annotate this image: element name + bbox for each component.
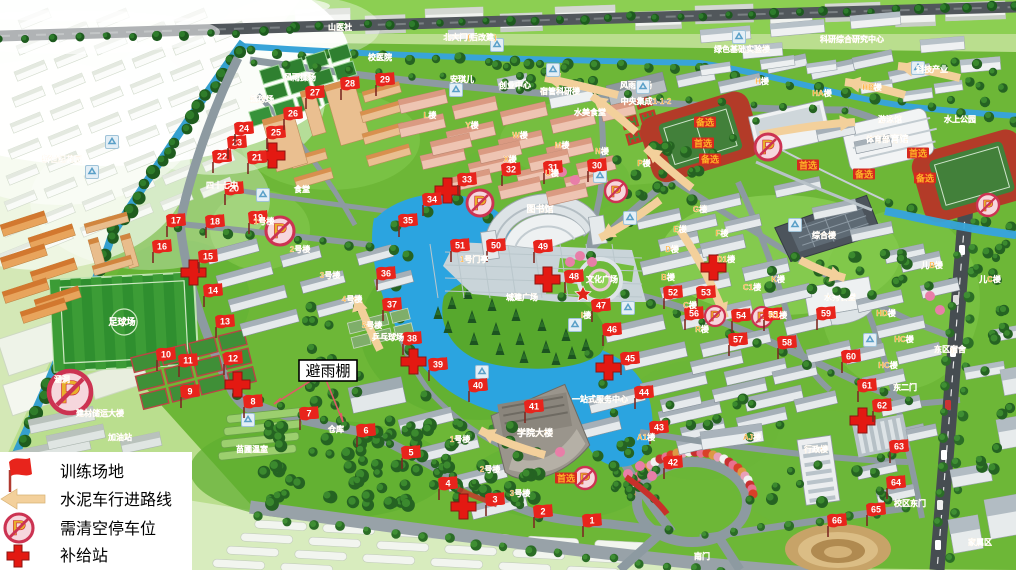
svg-text:4: 4 <box>445 479 450 489</box>
svg-text:训练场地: 训练场地 <box>60 463 124 481</box>
svg-text:需清空停车位: 需清空停车位 <box>60 520 156 538</box>
svg-text:校区东门: 校区东门 <box>894 498 926 508</box>
svg-text:16: 16 <box>157 242 167 252</box>
svg-text:I楼: I楼 <box>581 310 591 320</box>
svg-text:四十七中: 四十七中 <box>206 180 238 190</box>
svg-text:家属区: 家属区 <box>968 537 992 547</box>
svg-text:D1楼: D1楼 <box>717 254 735 264</box>
svg-text:备选: 备选 <box>700 153 719 164</box>
svg-text:25: 25 <box>271 128 281 138</box>
svg-text:科技产业: 科技产业 <box>916 64 948 74</box>
svg-text:W楼: W楼 <box>512 130 528 140</box>
svg-text:45: 45 <box>625 354 635 364</box>
svg-text:C1楼: C1楼 <box>743 282 761 292</box>
svg-text:23: 23 <box>232 138 242 148</box>
svg-text:12: 12 <box>228 354 238 364</box>
svg-text:M楼: M楼 <box>555 140 570 150</box>
svg-text:61: 61 <box>862 381 872 391</box>
svg-text:涵洞: 涵洞 <box>54 374 70 384</box>
svg-text:L楼: L楼 <box>424 110 437 120</box>
svg-text:水上公园: 水上公园 <box>943 114 976 124</box>
svg-text:行政楼: 行政楼 <box>803 444 828 454</box>
svg-text:7: 7 <box>306 409 311 419</box>
svg-text:备选: 备选 <box>695 116 714 127</box>
svg-text:65: 65 <box>871 505 881 515</box>
svg-text:仓库: 仓库 <box>327 424 344 434</box>
svg-text:24: 24 <box>239 124 249 134</box>
svg-text:40: 40 <box>473 381 483 391</box>
svg-text:10: 10 <box>161 350 171 360</box>
svg-text:儿C楼: 儿C楼 <box>978 274 1001 284</box>
svg-text:44: 44 <box>639 388 649 398</box>
svg-text:39: 39 <box>433 360 443 370</box>
svg-text:6: 6 <box>363 426 368 436</box>
svg-text:体育部: 体育部 <box>866 134 890 144</box>
svg-text:X楼: X楼 <box>503 154 516 164</box>
svg-text:避雨棚: 避雨棚 <box>305 363 350 380</box>
svg-text:C楼: C楼 <box>683 300 697 310</box>
svg-text:53: 53 <box>701 288 711 298</box>
svg-text:综合楼: 综合楼 <box>812 230 836 240</box>
svg-text:49: 49 <box>538 242 548 252</box>
svg-text:37: 37 <box>387 300 397 310</box>
svg-text:HC楼: HC楼 <box>894 334 914 344</box>
svg-text:1号门亭: 1号门亭 <box>460 254 488 264</box>
svg-text:北大门(后改建): 北大门(后改建) <box>443 32 497 42</box>
svg-text:52: 52 <box>668 288 678 298</box>
svg-text:14: 14 <box>208 286 218 296</box>
svg-text:5: 5 <box>408 448 413 458</box>
svg-text:58: 58 <box>782 338 792 348</box>
svg-text:城建广场: 城建广场 <box>506 292 538 302</box>
svg-text:补给站: 补给站 <box>60 547 108 565</box>
svg-text:U楼: U楼 <box>545 168 559 178</box>
svg-text:3号楼: 3号楼 <box>320 270 340 280</box>
svg-text:HB楼: HB楼 <box>862 82 882 92</box>
svg-text:62: 62 <box>877 401 887 411</box>
svg-text:E楼: E楼 <box>673 224 686 234</box>
svg-text:38: 38 <box>407 334 417 344</box>
svg-text:G楼: G楼 <box>693 204 707 214</box>
svg-text:南门: 南门 <box>694 551 710 561</box>
svg-text:41: 41 <box>529 402 539 412</box>
svg-text:50: 50 <box>491 241 501 251</box>
svg-text:安琪儿: 安琪儿 <box>450 74 474 84</box>
svg-text:篮球场: 篮球场 <box>249 94 274 104</box>
svg-text:新世纪花园: 新世纪花园 <box>42 154 82 164</box>
svg-text:备选: 备选 <box>915 172 934 183</box>
svg-text:宿管科研楼: 宿管科研楼 <box>540 86 580 96</box>
svg-text:加油站: 加油站 <box>107 432 132 442</box>
svg-text:3号楼: 3号楼 <box>510 488 530 498</box>
svg-text:游泳馆: 游泳馆 <box>878 114 902 124</box>
svg-text:26: 26 <box>288 109 298 119</box>
svg-text:22: 22 <box>217 152 227 162</box>
svg-text:2号楼: 2号楼 <box>480 464 500 474</box>
svg-text:3: 3 <box>492 495 497 505</box>
svg-text:42: 42 <box>668 458 678 468</box>
svg-text:66: 66 <box>832 516 842 526</box>
svg-text:K楼: K楼 <box>771 274 785 284</box>
svg-text:43: 43 <box>654 423 664 433</box>
svg-text:文化广场: 文化广场 <box>586 274 618 284</box>
svg-text:57: 57 <box>733 335 743 345</box>
svg-text:17: 17 <box>171 216 181 226</box>
svg-text:2: 2 <box>540 507 545 517</box>
svg-text:建材储运大楼: 建材储运大楼 <box>75 408 124 418</box>
svg-text:HC楼: HC楼 <box>878 360 898 370</box>
svg-text:儿B楼: 儿B楼 <box>920 260 943 270</box>
svg-text:30: 30 <box>592 161 602 171</box>
svg-text:64: 64 <box>891 478 901 488</box>
svg-text:A1楼: A1楼 <box>637 432 655 442</box>
svg-text:校医院: 校医院 <box>368 52 392 62</box>
svg-text:28: 28 <box>345 79 355 89</box>
svg-text:风雨操场: 风雨操场 <box>284 72 316 82</box>
svg-text:29: 29 <box>380 75 390 85</box>
svg-text:食堂: 食堂 <box>294 184 310 194</box>
svg-text:足球场: 足球场 <box>108 316 135 327</box>
svg-text:山医社: 山医社 <box>328 22 352 32</box>
svg-text:2号楼: 2号楼 <box>290 244 310 254</box>
svg-text:34: 34 <box>427 195 437 205</box>
svg-text:首选: 首选 <box>909 147 927 158</box>
svg-text:AJ楼: AJ楼 <box>743 432 761 442</box>
svg-text:63: 63 <box>894 442 904 452</box>
svg-text:苗圃温室: 苗圃温室 <box>236 444 268 454</box>
svg-text:32: 32 <box>506 165 516 175</box>
svg-text:5号楼: 5号楼 <box>362 320 382 330</box>
svg-text:水泥车行进路线: 水泥车行进路线 <box>60 491 172 509</box>
svg-text:科研综合研究中心: 科研综合研究中心 <box>820 34 884 44</box>
svg-text:创业中心: 创业中心 <box>498 80 531 90</box>
svg-text:绿色基础实验楼: 绿色基础实验楼 <box>714 44 770 54</box>
svg-text:一站式服务中心: 一站式服务中心 <box>572 394 628 404</box>
svg-text:HA楼: HA楼 <box>812 88 832 98</box>
svg-text:备选: 备选 <box>854 168 873 179</box>
svg-text:东二门: 东二门 <box>893 382 917 392</box>
svg-text:H楼: H楼 <box>755 76 769 86</box>
svg-text:Y楼: Y楼 <box>465 120 478 130</box>
svg-text:4号楼: 4号楼 <box>342 294 362 304</box>
svg-text:首选: 首选 <box>557 472 575 483</box>
svg-text:9: 9 <box>187 387 192 397</box>
svg-text:56: 56 <box>689 309 699 319</box>
svg-text:F楼: F楼 <box>716 228 729 238</box>
svg-text:中央集成1-1-2: 中央集成1-1-2 <box>621 96 672 106</box>
svg-text:8: 8 <box>250 397 255 407</box>
svg-text:11: 11 <box>183 356 193 366</box>
svg-text:首选: 首选 <box>694 137 712 148</box>
svg-text:R1楼: R1楼 <box>769 310 787 320</box>
svg-text:46: 46 <box>607 325 617 335</box>
svg-text:48: 48 <box>569 272 579 282</box>
svg-text:首选: 首选 <box>799 159 817 170</box>
svg-text:36: 36 <box>381 269 391 279</box>
svg-text:乒乓球场: 乒乓球场 <box>372 332 404 342</box>
svg-text:51: 51 <box>455 241 465 251</box>
svg-text:59: 59 <box>821 309 831 319</box>
svg-text:47: 47 <box>596 301 606 311</box>
svg-text:1号楼: 1号楼 <box>254 216 274 226</box>
svg-text:21: 21 <box>252 153 262 163</box>
svg-text:18: 18 <box>210 217 220 227</box>
svg-text:15: 15 <box>203 252 213 262</box>
svg-text:1: 1 <box>589 516 594 526</box>
svg-text:1号楼: 1号楼 <box>450 434 470 444</box>
svg-text:13: 13 <box>220 317 230 327</box>
svg-text:学院大楼: 学院大楼 <box>517 427 553 438</box>
svg-text:东区宿舍: 东区宿舍 <box>934 344 967 354</box>
svg-text:水美食堂: 水美食堂 <box>573 107 606 117</box>
svg-text:D楼: D楼 <box>665 244 679 254</box>
svg-text:B楼: B楼 <box>661 272 675 282</box>
svg-text:P楼: P楼 <box>637 158 650 168</box>
svg-text:33: 33 <box>462 175 472 185</box>
svg-text:R楼: R楼 <box>695 324 709 334</box>
svg-text:27: 27 <box>310 88 320 98</box>
svg-text:35: 35 <box>403 216 413 226</box>
svg-text:HD楼: HD楼 <box>876 308 896 318</box>
svg-text:54: 54 <box>736 311 746 321</box>
svg-text:60: 60 <box>846 352 856 362</box>
svg-text:N楼: N楼 <box>595 146 609 156</box>
